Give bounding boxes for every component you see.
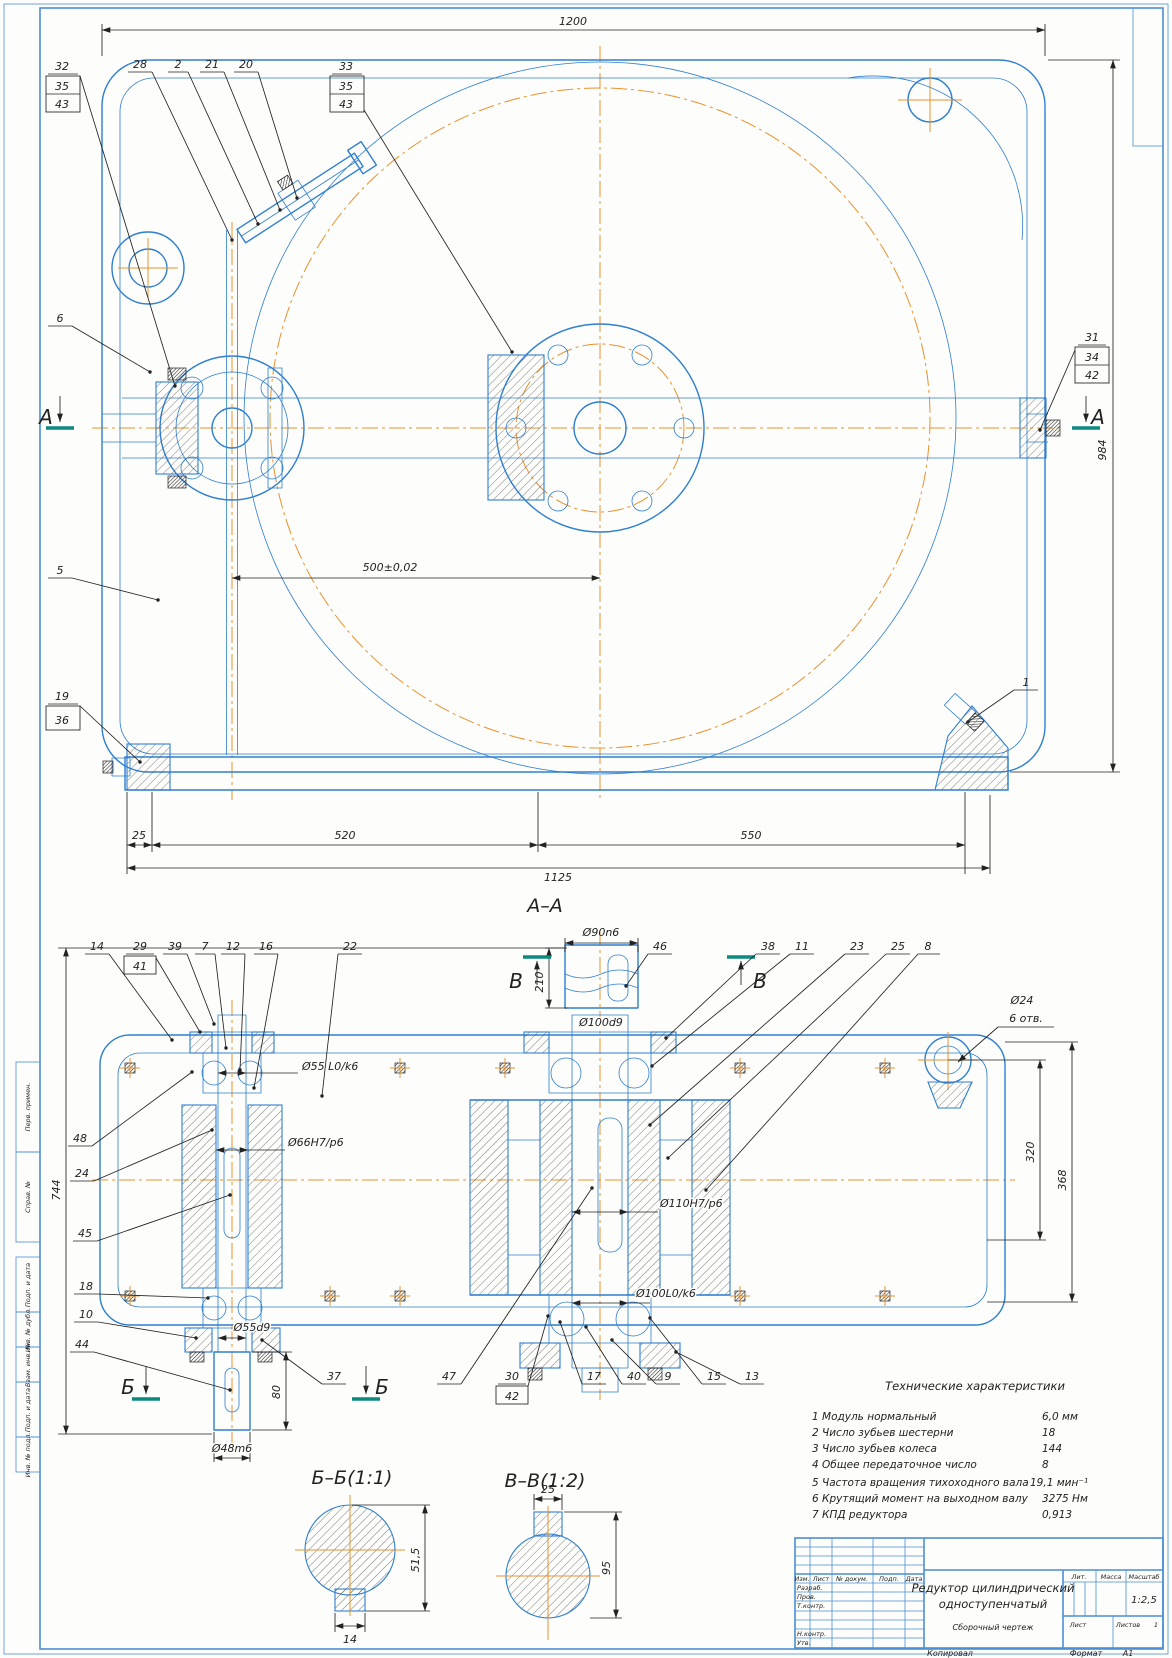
tb-role-nkontr: Н.контр. [797,1630,826,1638]
keyway [608,955,628,1001]
section-mark-v-left: В [509,969,523,993]
callout-21: 21 [205,58,219,71]
wheel-rim [470,1100,508,1295]
footer-format-value: А1 [1122,1649,1134,1658]
tech-row-value: 6,0 мм [1042,1411,1078,1423]
callout-19: 19 [55,690,69,703]
tech-row-name: 3 Число зубьев колеса [812,1443,937,1455]
dim-bb-across: 51,5 [409,1548,422,1573]
detail-vv: В–В(1:2) 25 95 [496,1470,622,1640]
tb-sheets-value: 1 [1154,1621,1158,1629]
tb-header-doc: № докум. [835,1575,868,1583]
callout-39: 39 [168,940,182,953]
callout-13: 13 [745,1370,759,1383]
callout-box-32-35-43: 32 35 43 [46,60,175,386]
callout-36: 36 [55,714,69,727]
callout-40: 40 [627,1370,641,1383]
detail-bb-label: Б–Б(1:1) [312,1467,393,1489]
tb-doc-title-2: одноступенчатый [939,1597,1048,1611]
tech-row-value: 18 [1042,1427,1056,1439]
tb-role-razrab: Разраб. [797,1584,823,1592]
callout-20: 20 [239,58,253,71]
section-label: А–А [525,895,563,917]
section-view: А–А [50,895,1078,1462]
tb-doc-type: Сборочный чертеж [953,1623,1035,1632]
tech-specs: Технические характеристики 1 Модуль норм… [812,1379,1088,1521]
keyway [598,1118,622,1252]
callout-33: 33 [339,60,353,73]
callout-15: 15 [707,1370,721,1383]
top-view: 1200 984 500±0,02 25 520 550 1125 А А 32 [37,15,1120,884]
dim-bb-key: 14 [343,1633,357,1646]
callout-6: 6 [57,312,64,325]
bolt-icon [258,1352,272,1362]
tech-title: Технические характеристики [885,1379,1065,1393]
tb-role-utv: Утв. [797,1639,811,1647]
pinion-section [182,1105,216,1288]
frame-col-label: Перв. примен. [24,1083,32,1132]
tb-doc-title-1: Редуктор цилиндрический [912,1581,1075,1595]
dim-coupling-dia: Ø90n6 [582,926,620,939]
callout-23: 23 [850,940,864,953]
callout-45: 45 [78,1227,92,1240]
dim-vv-key: 25 [541,1483,555,1496]
tb-scale-value: 1:2,5 [1131,1595,1157,1606]
tech-row-name: 7 КПД редуктора [812,1509,908,1521]
tech-row-value: 0,913 [1042,1509,1072,1521]
top-view-callouts: 32 35 43 33 35 43 28 2 21 20 6 [46,58,1109,762]
dim-wheel-fit: Ø110H7/p6 [659,1197,723,1210]
tb-scale-label: Масштаб [1129,1573,1160,1581]
callout-41: 41 [133,960,147,973]
callout-28: 28 [133,58,147,71]
dim-section-height: 744 [50,1180,63,1201]
tb-header-list: Лист [812,1575,830,1583]
callout-38: 38 [761,940,775,953]
dim-wall-height: 368 [1056,1170,1069,1191]
dim-overall-width: 1200 [559,15,587,28]
bolt-icon [168,368,186,380]
section-mark-v-right: В [753,969,767,993]
callout-35: 35 [55,80,69,93]
tb-sheets-label: Листов [1115,1621,1140,1629]
tech-row-name: 4 Общее передаточное число [812,1459,977,1471]
footer-copied: Копировал [927,1649,973,1658]
title-block: Изм. Лист № докум. Подп. Дата Разраб. Пр… [794,1538,1163,1658]
callout-7: 7 [202,940,209,953]
detail-bb: Б–Б(1:1) 51,5 14 [295,1467,430,1646]
callout-29: 29 [133,940,147,953]
dim-span-right: 550 [741,829,762,842]
frame-col-label: Взам. инв. № [24,1343,32,1387]
tech-row-value: 8 [1042,1459,1049,1471]
tech-row-name: 2 Число зубьев шестерни [812,1427,954,1439]
tb-role-prov: Пров. [797,1593,816,1601]
tb-header-izm: Изм. [794,1575,809,1583]
dim-span-left: 520 [335,829,356,842]
drawing-frame [40,8,1163,1649]
tech-row-value: 144 [1042,1443,1062,1455]
callout-42: 42 [505,1390,519,1403]
callout-48: 48 [73,1132,87,1145]
drawing-sheet: Перв. примен. Справ. № Подп. и дата Инв.… [0,0,1172,1658]
callout-24: 24 [75,1167,89,1180]
callout-9: 9 [665,1370,672,1383]
dim-shaft-end-dia: Ø48m6 [211,1442,252,1455]
section-mark-b-left: Б [121,1375,135,1399]
callout-16: 16 [259,940,273,953]
callout-2: 2 [175,58,182,71]
coupling-end [565,945,638,1008]
dim-gear-fit-in: Ø66H7/p6 [287,1136,344,1149]
breather-assembly [227,132,377,250]
callout-47: 47 [442,1370,456,1383]
callout-box-19-36: 19 36 [46,690,140,762]
callout-43: 43 [339,98,353,111]
callout-25: 25 [891,940,905,953]
section-mark-b-right: Б [375,1375,389,1399]
callout-44: 44 [75,1338,89,1351]
dim-vv-across: 95 [600,1561,613,1575]
dim-foot-offset: 25 [132,829,146,842]
callout-35: 35 [339,80,353,93]
callout-32: 32 [55,60,69,73]
bolt-icon [168,476,186,488]
oil-plugs [103,693,1008,790]
dim-hole-count: 6 отв. [1009,1012,1043,1025]
bolt-icon [190,1352,204,1362]
dim-bearing-fit-in: Ø55 L0/k6 [301,1060,358,1073]
tb-header-podp: Подп. [879,1575,899,1583]
top-view-housing [102,60,1048,790]
callout-43: 43 [55,98,69,111]
oil-level-plug [103,761,113,773]
tech-row-name: 1 Модуль нормальный [812,1411,937,1423]
callout-8: 8 [925,940,932,953]
base-plate [125,757,1008,790]
tech-row-name: 6 Крутящий момент на выходном валу [812,1493,1029,1505]
dim-shaft-end-len: 80 [270,1385,283,1399]
dim-seal-dia: Ø55d9 [233,1321,271,1334]
callout-30: 30 [505,1370,519,1383]
callout-22: 22 [343,940,357,953]
callout-5: 5 [57,564,64,577]
corner-stamp-box [1133,8,1163,146]
callout-12: 12 [226,940,240,953]
sheet-border [4,4,1168,1654]
bearing-cap-section [156,382,198,474]
frame-col-label: Подп. и дата [24,1388,32,1432]
dim-seat-dia: Ø100d9 [578,1016,623,1029]
dim-bearing-fit-out: Ø100L0/k6 [635,1287,696,1300]
tb-role-tkontr: Т.контр. [797,1602,825,1610]
tech-row-value: 3275 Нм [1042,1493,1088,1505]
callout-14: 14 [90,940,104,953]
callout-1: 1 [1023,676,1030,689]
tech-row-name: 5 Частота вращения тихоходного вала [812,1477,1029,1489]
section-mark-a-right: А [1089,405,1105,429]
wheel-hub [540,1100,572,1295]
bolt-icon [1046,420,1060,436]
tb-sheet-label: Лист [1069,1621,1087,1629]
dim-center-distance: 500±0,02 [363,561,418,574]
callout-46: 46 [653,940,667,953]
dim-base-length: 1125 [544,871,572,884]
dim-coupling-len: 210 [533,972,546,993]
callout-34: 34 [1085,351,1099,364]
callout-37: 37 [327,1370,341,1383]
callout-10: 10 [79,1308,93,1321]
dim-bore-height: 320 [1024,1142,1037,1163]
callout-box-33-35-43: 33 35 43 [330,60,512,352]
callout-18: 18 [79,1280,93,1293]
callout-17: 17 [587,1370,601,1383]
dim-hole-dia: Ø24 [1010,994,1034,1007]
frame-col-label: Справ. № [24,1181,32,1213]
tb-massa-label: Масса [1101,1573,1122,1581]
sheet-frame: Перв. примен. Справ. № Подп. и дата Инв.… [4,4,1168,1654]
callout-42: 42 [1085,369,1099,382]
callout-11: 11 [795,940,809,953]
callout-31: 31 [1085,331,1099,344]
frame-col-label: Инв. № подл. [24,1433,32,1478]
tb-lit-label: Лит. [1071,1573,1087,1581]
footer-format-label: Формат [1070,1649,1103,1658]
section-mark-a-left: А [37,405,53,429]
left-frame-columns: Перв. примен. Справ. № Подп. и дата Инв.… [16,1062,40,1477]
tech-row-value: 19,1 мин⁻¹ [1030,1477,1088,1489]
dim-overall-height: 984 [1096,440,1109,461]
frame-col-label: Подп. и дата [24,1263,32,1307]
